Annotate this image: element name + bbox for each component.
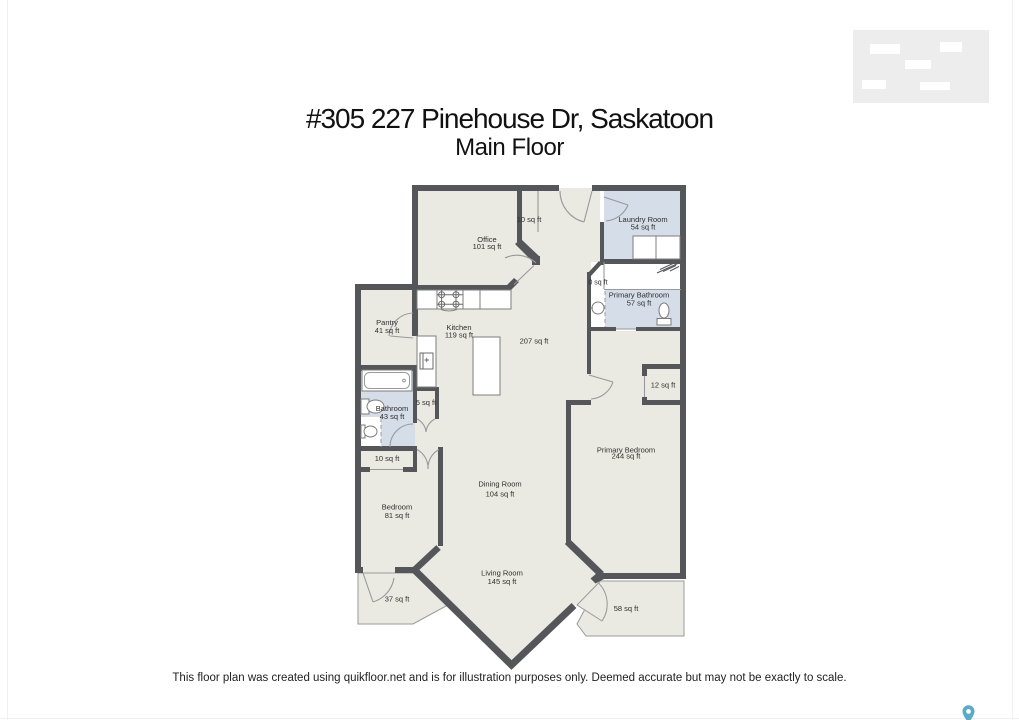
svg-text:207 sq ft: 207 sq ft <box>520 337 550 346</box>
svg-text:37 sq ft: 37 sq ft <box>385 595 411 604</box>
svg-text:81 sq ft: 81 sq ft <box>385 511 411 520</box>
svg-text:5 sq ft: 5 sq ft <box>416 398 437 407</box>
svg-text:Dining Room: Dining Room <box>478 480 521 489</box>
svg-text:54 sq ft: 54 sq ft <box>631 223 657 232</box>
svg-text:10 sq ft: 10 sq ft <box>517 215 543 224</box>
svg-text:58 sq ft: 58 sq ft <box>614 604 640 613</box>
svg-text:145 sq ft: 145 sq ft <box>488 577 518 586</box>
svg-text:101 sq ft: 101 sq ft <box>473 242 503 251</box>
svg-text:41 sq ft: 41 sq ft <box>375 326 401 335</box>
svg-text:43 sq ft: 43 sq ft <box>380 412 406 421</box>
svg-text:0 sq ft: 0 sq ft <box>588 280 607 287</box>
svg-text:12 sq ft: 12 sq ft <box>651 381 677 390</box>
svg-text:10 sq ft: 10 sq ft <box>375 454 401 463</box>
svg-text:244 sq ft: 244 sq ft <box>612 452 642 461</box>
svg-text:119 sq ft: 119 sq ft <box>445 331 474 340</box>
svg-text:57 sq ft: 57 sq ft <box>627 299 653 308</box>
svg-text:104 sq ft: 104 sq ft <box>486 490 516 499</box>
